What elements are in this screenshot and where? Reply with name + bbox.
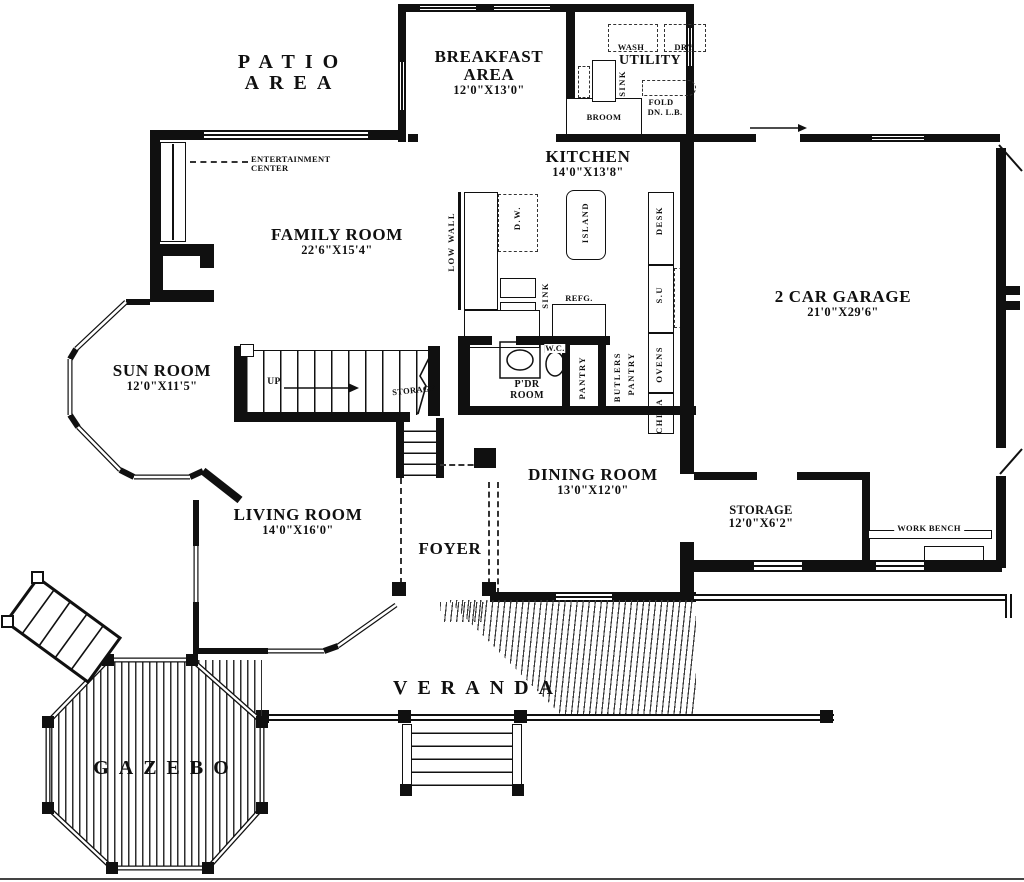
room-name: ROOM	[510, 391, 544, 402]
room-name: SUN ROOM	[113, 362, 211, 380]
room-name: P'DR	[510, 380, 544, 391]
room-name: BREAKFAST	[435, 48, 544, 66]
dry-label: DRY	[674, 43, 693, 52]
room-name: FAMILY ROOM	[271, 226, 403, 244]
label-line: CENTER	[251, 164, 331, 173]
room-dims: 12'0"X11'5"	[113, 380, 211, 393]
veranda-label: VERANDA	[393, 678, 563, 699]
family-room-label: FAMILY ROOM 22'6"X15'4"	[271, 226, 403, 257]
foyer-label: FOYER	[419, 540, 482, 558]
refrigerator-label: REFG.	[563, 294, 594, 303]
gazebo-label: GAZEBO	[93, 758, 239, 779]
fold-label: FOLD	[649, 98, 674, 107]
island-label: ISLAND	[580, 202, 590, 243]
ovens-label: OVENS	[654, 346, 664, 383]
room-name: LIVING ROOM	[234, 506, 363, 524]
storage-room-label: STORAGE 12'0"X6'2"	[729, 504, 794, 530]
butlers-pantry-label2: PANTRY	[626, 352, 636, 396]
room-dims: 12'0"X6'2"	[729, 517, 794, 530]
utility-sink-label: SINK	[617, 70, 627, 97]
low-wall-label: LOW WALL	[446, 212, 456, 272]
room-dims: 14'0"X13'8"	[545, 166, 630, 179]
room-dims: 12'0"X13'0"	[435, 84, 544, 97]
kitchen-label: KITCHEN 14'0"X13'8"	[545, 148, 630, 179]
entertainment-center-label: ENTERTAINMENT CENTER	[251, 155, 331, 173]
pantry-label: PANTRY	[577, 356, 587, 400]
room-name: DINING ROOM	[528, 466, 658, 484]
fold-dn-label: DN. L.B.	[648, 108, 683, 117]
desk-label: DESK	[654, 206, 664, 235]
broom-label: BROOM	[587, 113, 622, 122]
wc-label: W.C.	[544, 344, 565, 353]
butlers-pantry-label1: BUTLERS	[612, 352, 622, 402]
breakfast-label: BREAKFAST AREA 12'0"X13'0"	[435, 48, 544, 97]
sink-label: SINK	[540, 282, 550, 309]
leader-line	[190, 161, 248, 163]
patio-area-label: PATIO AREA	[238, 52, 348, 94]
work-bench-label: WORK BENCH	[894, 524, 964, 533]
room-name: KITCHEN	[545, 148, 630, 166]
sun-room-label: SUN ROOM 12'0"X11'5"	[113, 362, 211, 393]
room-dims: 21'0"X29'6"	[775, 306, 912, 319]
floor-plan: PATIO AREA BREAKFAST AREA 12'0"X13'0" UT…	[0, 0, 1024, 882]
patio-line1: PATIO	[238, 52, 348, 73]
living-room-label: LIVING ROOM 14'0"X16'0"	[234, 506, 363, 537]
patio-line2: AREA	[238, 73, 348, 94]
su-label: S.U	[654, 286, 664, 304]
wash-label: WASH	[618, 43, 644, 52]
room-name: AREA	[435, 66, 544, 84]
dining-room-label: DINING ROOM 13'0"X12'0"	[528, 466, 658, 497]
up-label: UP	[267, 378, 280, 388]
dishwasher-label: D.W.	[512, 206, 522, 230]
room-name: 2 CAR GARAGE	[775, 288, 912, 306]
plan-linework	[0, 0, 1024, 882]
powder-room-label: P'DR ROOM	[510, 380, 544, 401]
room-dims: 13'0"X12'0"	[528, 484, 658, 497]
china-label: CHINA	[654, 398, 664, 434]
room-dims: 14'0"X16'0"	[234, 524, 363, 537]
garage-label: 2 CAR GARAGE 21'0"X29'6"	[775, 288, 912, 319]
utility-label: UTILITY	[619, 54, 681, 69]
room-dims: 22'6"X15'4"	[271, 244, 403, 257]
